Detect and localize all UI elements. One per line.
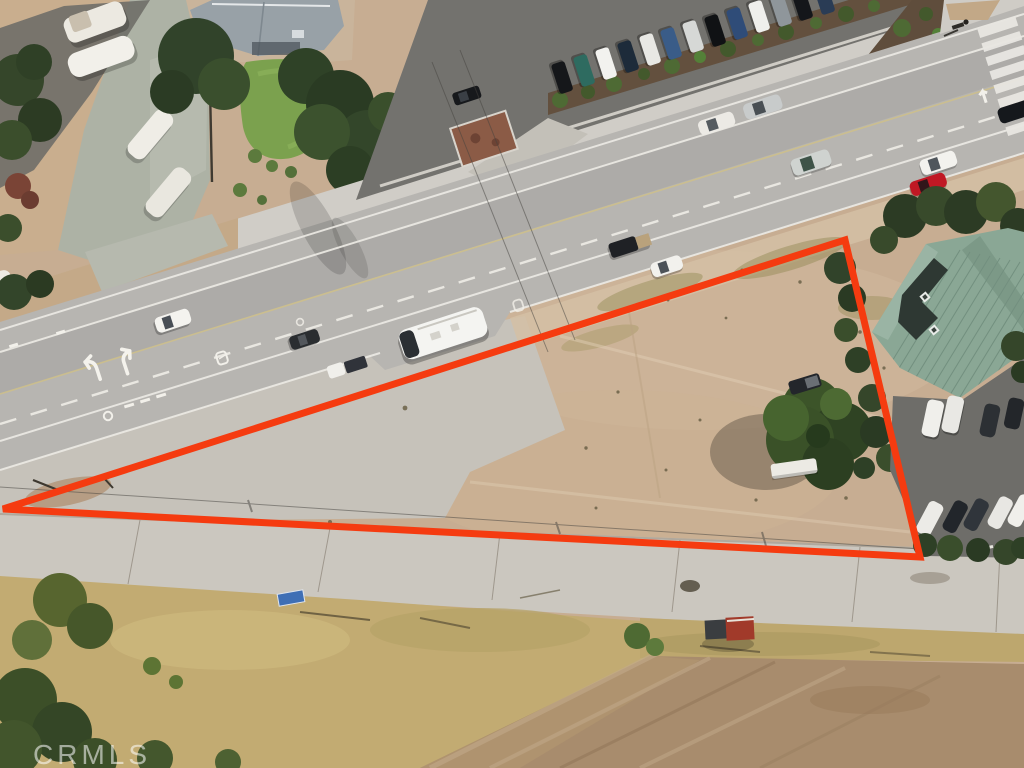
shed <box>702 616 755 652</box>
aerial-photo: CRMLS <box>0 0 1024 768</box>
shrub <box>646 638 664 656</box>
watermark: CRMLS <box>33 739 151 768</box>
shrub <box>624 623 650 649</box>
